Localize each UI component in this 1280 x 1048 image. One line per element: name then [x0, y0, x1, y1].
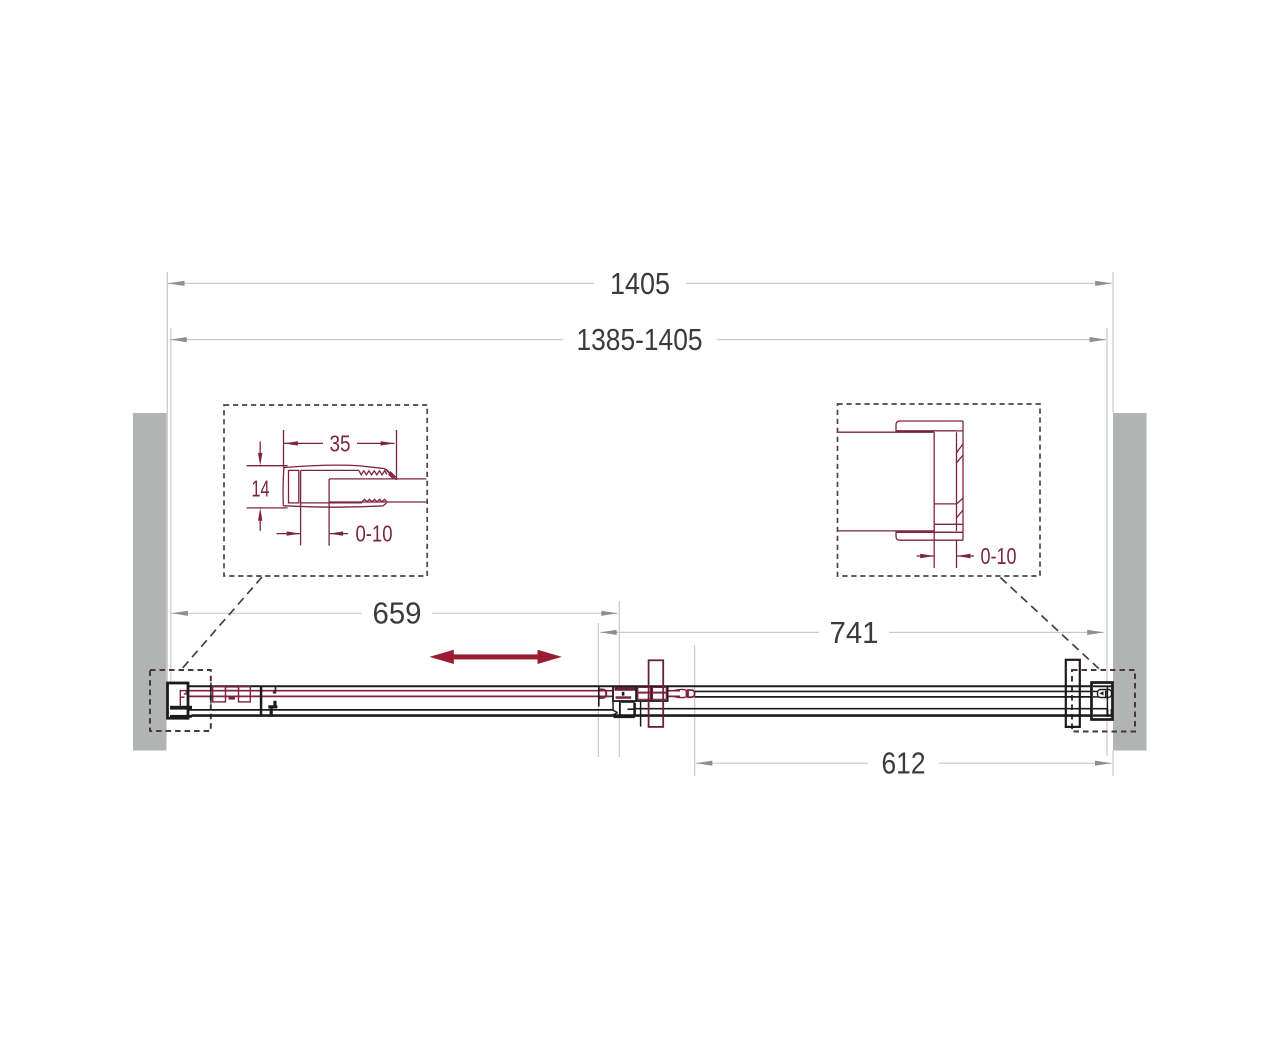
svg-text:0-10: 0-10 [356, 521, 393, 547]
svg-text:659: 659 [373, 596, 422, 631]
svg-text:0-10: 0-10 [981, 543, 1017, 569]
svg-text:1405: 1405 [610, 266, 670, 301]
svg-text:14: 14 [252, 476, 270, 502]
svg-text:741: 741 [830, 615, 879, 650]
svg-text:1385-1405: 1385-1405 [577, 322, 703, 357]
svg-text:35: 35 [330, 431, 351, 457]
svg-text:612: 612 [882, 746, 926, 781]
